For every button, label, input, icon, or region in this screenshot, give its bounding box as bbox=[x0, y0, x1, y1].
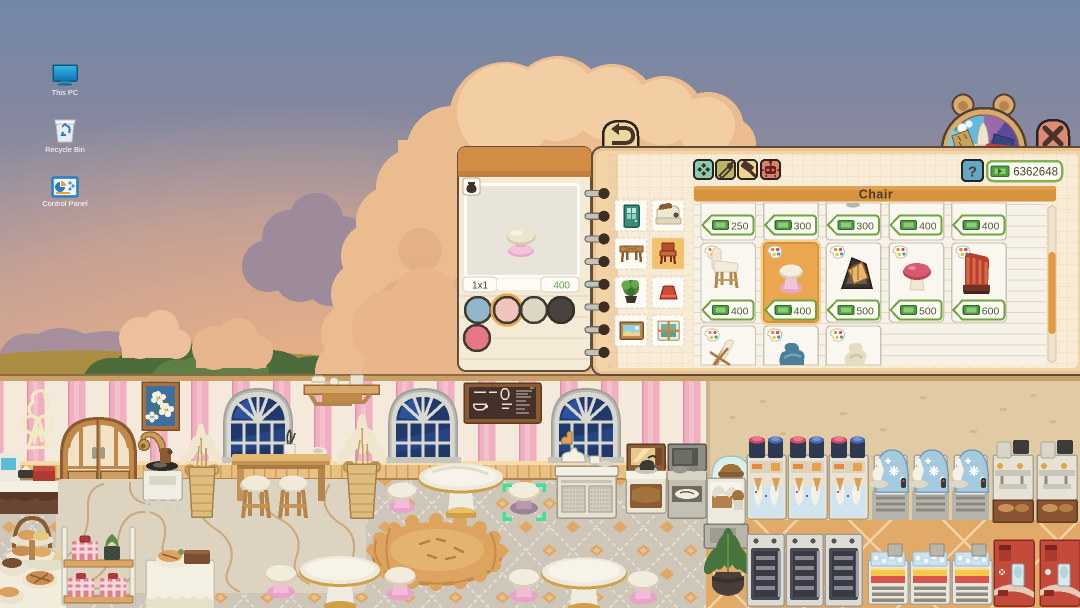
svg-text:300: 300 bbox=[856, 221, 874, 233]
svg-text:Control Panel: Control Panel bbox=[42, 199, 88, 208]
svg-text:500: 500 bbox=[856, 306, 874, 318]
svg-text:600: 600 bbox=[982, 306, 1000, 318]
svg-text:Recycle Bin: Recycle Bin bbox=[45, 145, 85, 154]
svg-text:6362648: 6362648 bbox=[1013, 167, 1058, 179]
svg-text:400: 400 bbox=[553, 281, 570, 292]
svg-text:1x1: 1x1 bbox=[472, 281, 489, 292]
svg-text:400: 400 bbox=[982, 221, 1000, 233]
svg-text:Chair: Chair bbox=[859, 188, 893, 202]
svg-text:400: 400 bbox=[731, 306, 749, 318]
svg-text:250: 250 bbox=[731, 221, 749, 233]
svg-text:300: 300 bbox=[794, 221, 812, 233]
svg-text:400: 400 bbox=[794, 306, 812, 318]
svg-text:500: 500 bbox=[919, 306, 937, 318]
svg-text:?: ? bbox=[968, 164, 977, 181]
svg-text:This PC: This PC bbox=[52, 88, 79, 97]
svg-text:400: 400 bbox=[919, 221, 937, 233]
